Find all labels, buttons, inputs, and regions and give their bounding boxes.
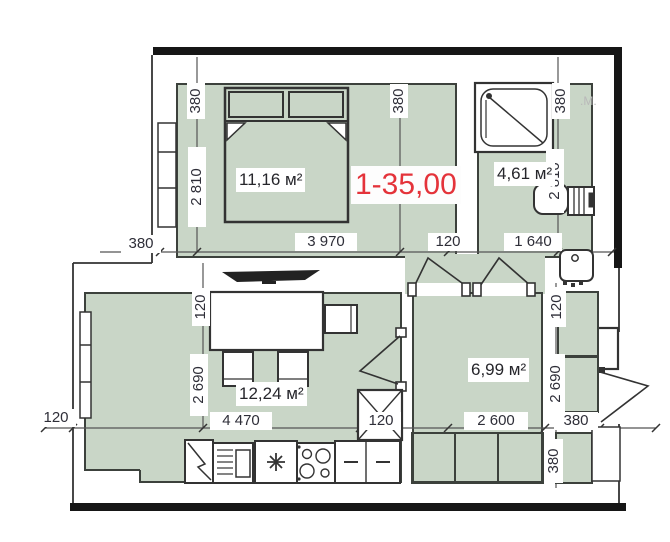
- dim-label: 380: [552, 83, 570, 119]
- room-area-label-living: 12,24 м²: [236, 382, 307, 406]
- floor-plan: 380 3 970 120 1 640 120 4 470 120 2 600 …: [0, 0, 670, 542]
- window-icon: [80, 312, 91, 418]
- unit-number-label: 1-35,00: [351, 166, 461, 204]
- tv-icon: [222, 270, 320, 284]
- pillow: [289, 92, 343, 117]
- kitchen-cabinet-icon: [185, 440, 213, 483]
- stove-icon: [297, 443, 335, 483]
- door-opening: [476, 283, 532, 296]
- dim-label: 120: [192, 288, 210, 326]
- dim-label: 4 470: [210, 412, 272, 430]
- chair-icon: [325, 305, 357, 333]
- dim-label: 120: [36, 409, 76, 427]
- dim-label: 2 690: [547, 354, 565, 414]
- dim-label: 380: [545, 439, 563, 483]
- bed-icon: [225, 88, 348, 222]
- entrance-door-icon: [593, 328, 648, 422]
- dim-label: 2 600: [464, 412, 528, 430]
- door-swing-icon: [360, 328, 406, 391]
- dim-label: 380: [187, 83, 205, 119]
- entry-cabinet-icon: [592, 427, 620, 481]
- room-area-label-hallway: 6,99 м²: [468, 358, 529, 382]
- dim-label: 380: [554, 412, 598, 430]
- dim-label: 380: [121, 235, 161, 253]
- fridge-icon: [255, 441, 297, 483]
- closet-icon: [412, 433, 543, 483]
- dim-label: 120: [428, 233, 468, 251]
- chair-icon: [278, 352, 308, 386]
- washbasin-icon: [560, 250, 593, 287]
- dim-label: 120: [548, 287, 566, 327]
- table-icon: [210, 292, 323, 350]
- kitchen-sink-icon: [213, 443, 253, 483]
- room-area-label-bathroom: 4,61 м²: [494, 162, 555, 186]
- radiator-icon: [568, 187, 594, 215]
- shower-icon: [475, 83, 553, 152]
- chair-icon: [223, 352, 253, 386]
- window-icon: [158, 123, 176, 227]
- floor-step: [84, 470, 140, 483]
- plan-graphics: [0, 0, 670, 542]
- dim-label: 2 690: [190, 354, 208, 416]
- dim-label: 1 640: [504, 233, 562, 251]
- room-area-label-bedroom: 11,16 м²: [236, 168, 305, 192]
- dim-label: 3 970: [295, 233, 357, 251]
- dim-label: 120: [361, 412, 401, 430]
- dim-label: 2 810: [188, 147, 206, 227]
- dim-label: 380: [390, 84, 408, 118]
- door-opening: [410, 283, 468, 296]
- watermark-text: .М.: [580, 94, 597, 108]
- counter-icon: [335, 441, 400, 483]
- pillow: [229, 92, 283, 117]
